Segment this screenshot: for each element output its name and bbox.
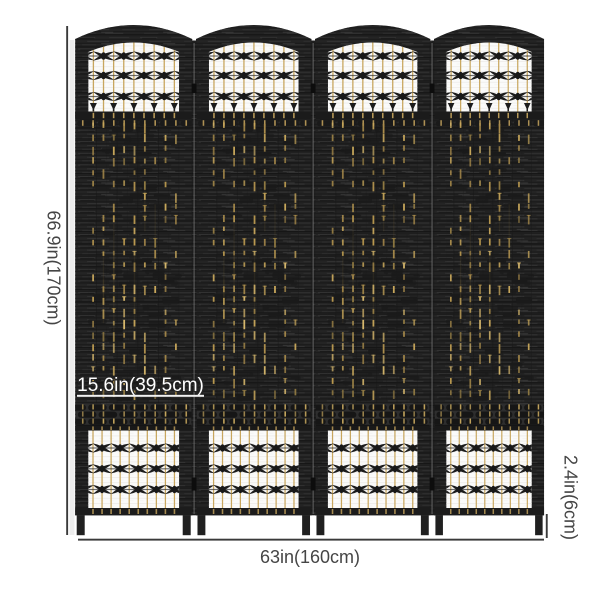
svg-text:63in(160cm): 63in(160cm) — [260, 547, 360, 567]
svg-text:2.4in(6cm): 2.4in(6cm) — [561, 455, 581, 540]
svg-text:15.6in(39.5cm): 15.6in(39.5cm) — [77, 375, 204, 396]
svg-text:66.9in(170cm): 66.9in(170cm) — [44, 210, 64, 325]
